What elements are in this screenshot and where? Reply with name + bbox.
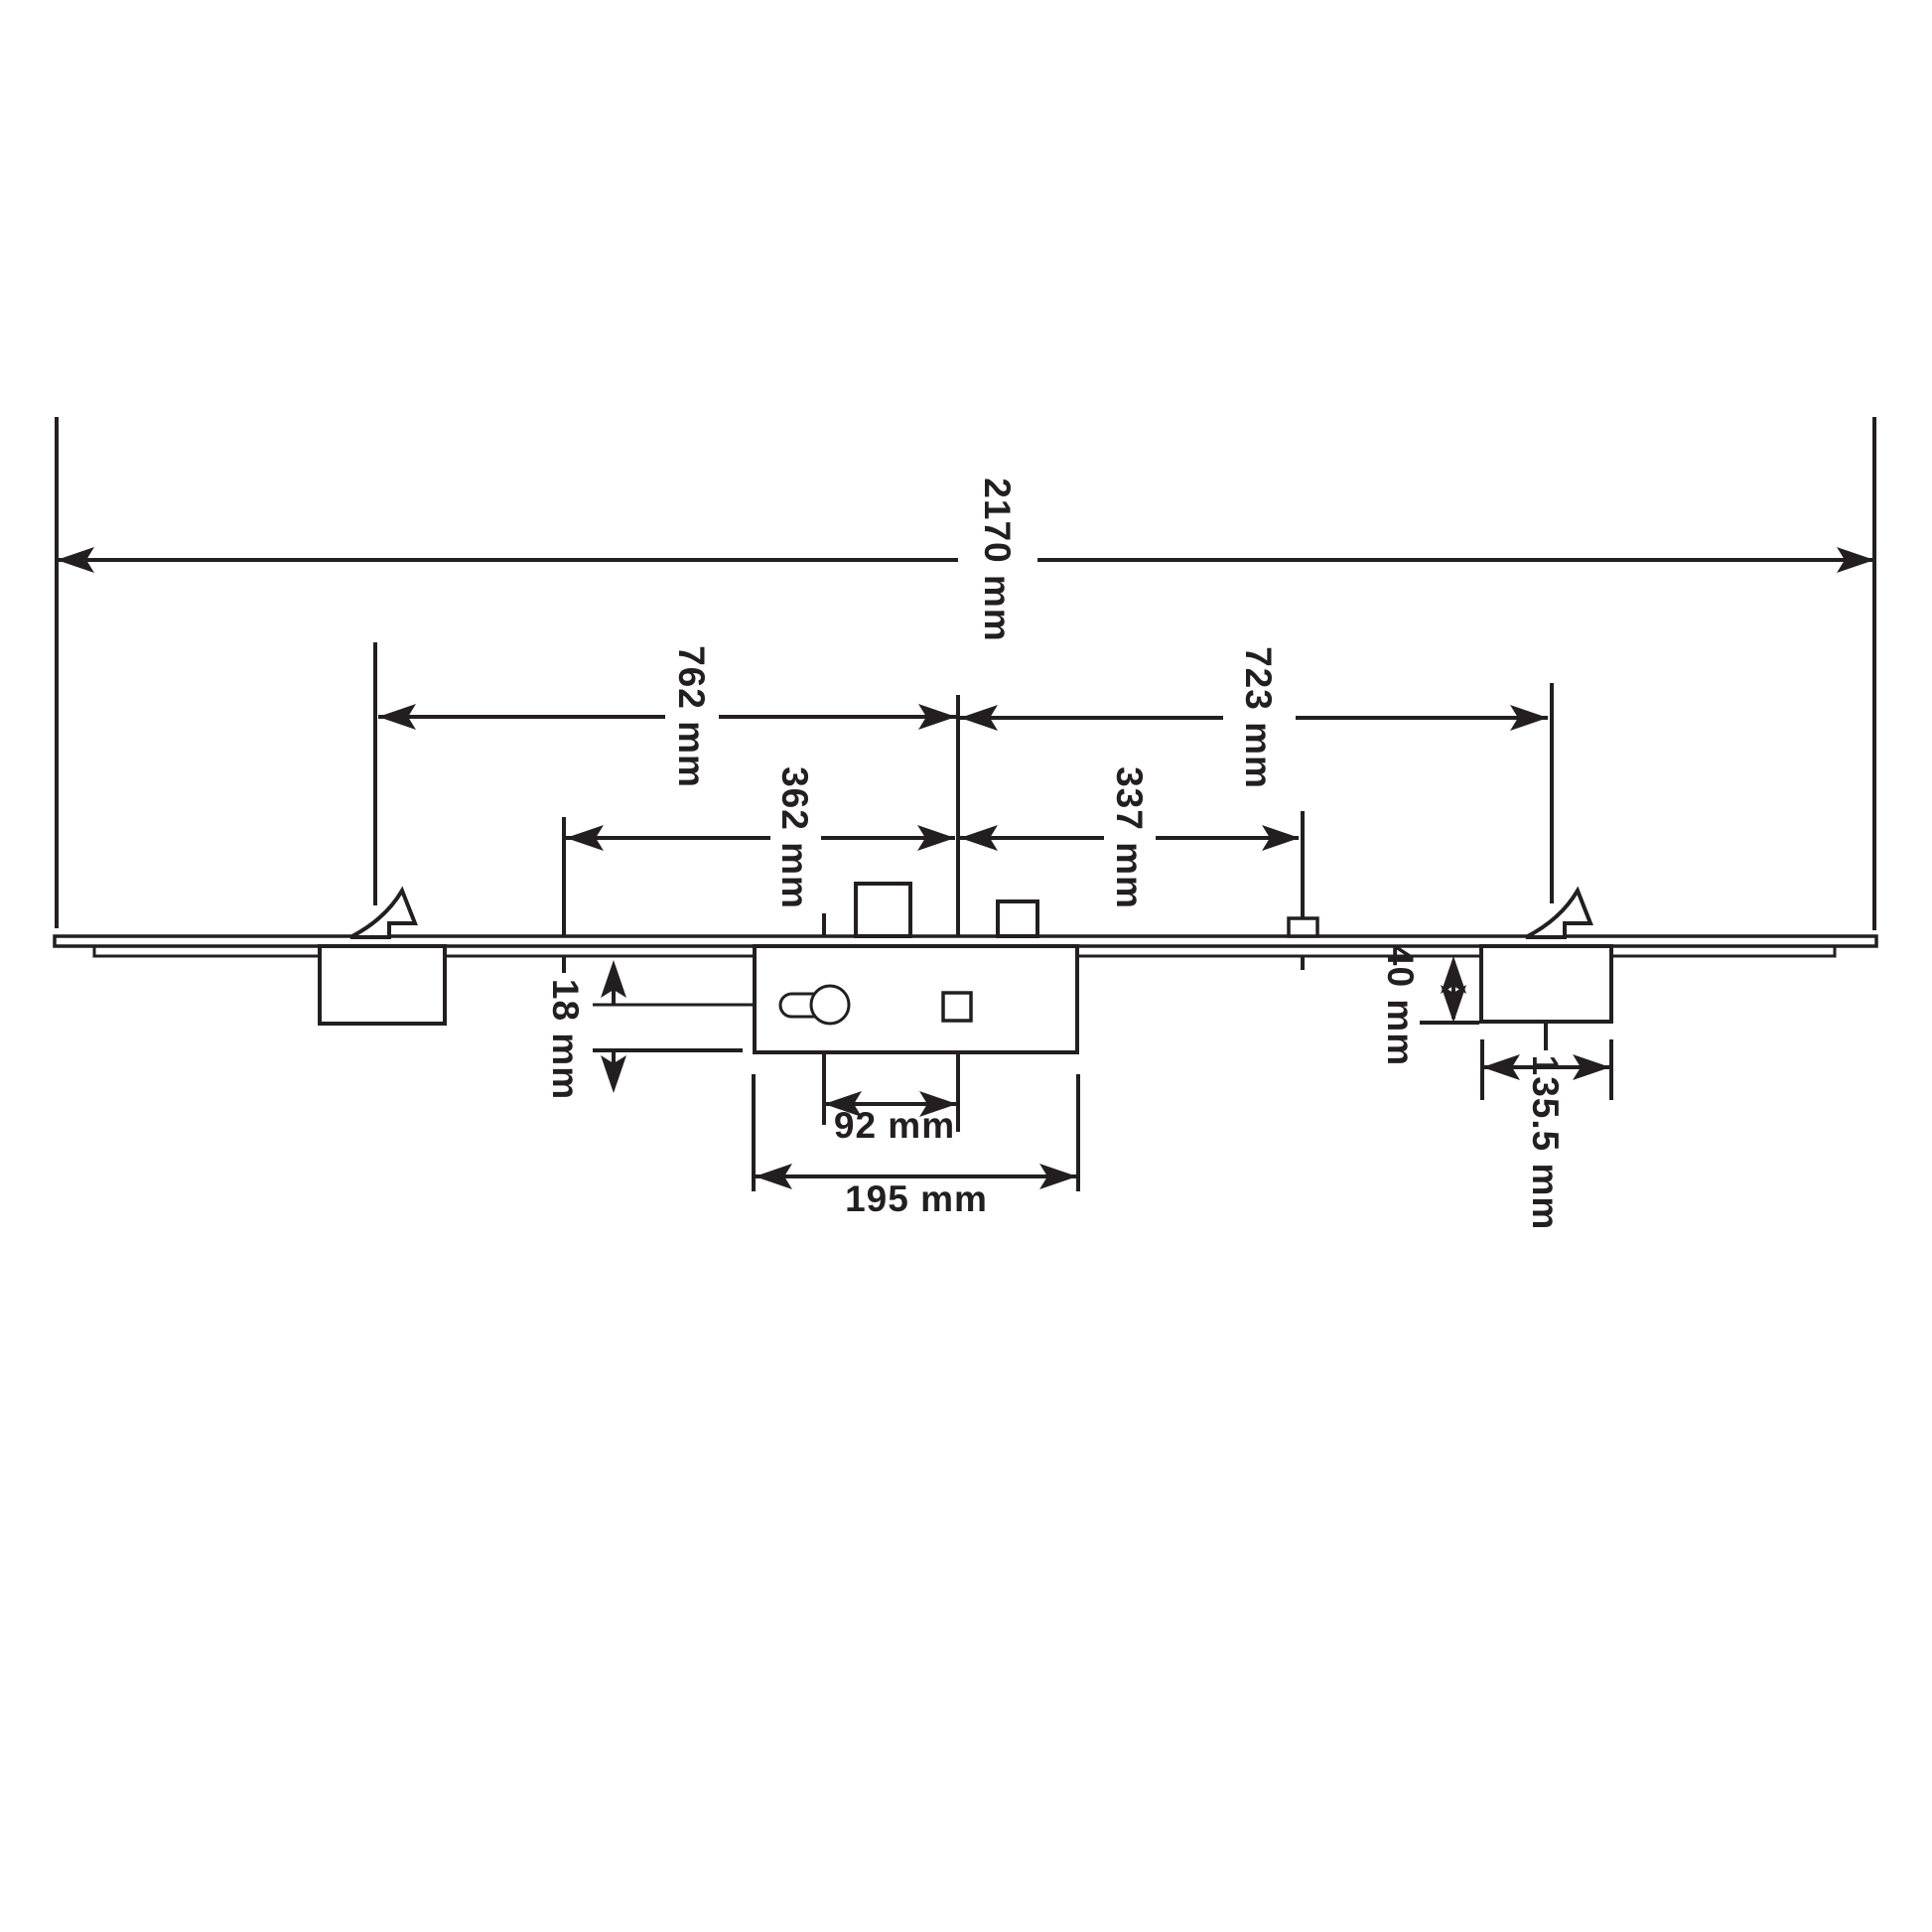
dimension-lines bbox=[57, 560, 1874, 1176]
dim-label-box-depth: 40 mm bbox=[1380, 945, 1421, 1066]
dimension-labels: 2170 mm 762 mm 723 mm 362 mm 337 mm 18 m… bbox=[545, 478, 1566, 1230]
arrowheads bbox=[57, 547, 1874, 1189]
latch-tab-left-of-center bbox=[856, 884, 910, 936]
latch-tab-right-of-center bbox=[998, 901, 1037, 936]
dim-label-left-inner: 362 mm bbox=[774, 766, 815, 909]
dim-label-right-inner: 337 mm bbox=[1109, 766, 1150, 909]
right-hook-bolt bbox=[1526, 891, 1590, 937]
spindle-square-hole bbox=[943, 993, 971, 1021]
left-strike-box bbox=[320, 946, 445, 1024]
dim-label-box-width: 135.5 mm bbox=[1525, 1055, 1566, 1231]
lock-dimension-drawing: 2170 mm 762 mm 723 mm 362 mm 337 mm 18 m… bbox=[0, 0, 1932, 1932]
left-hook-bolt bbox=[350, 891, 415, 937]
dim-label-case-length: 195 mm bbox=[845, 1178, 988, 1219]
roller-cam-tab bbox=[1289, 918, 1317, 936]
drawing-page: 2170 mm 762 mm 723 mm 362 mm 337 mm 18 m… bbox=[0, 0, 1932, 1932]
dim-label-left-span: 762 mm bbox=[671, 645, 712, 788]
dim-label-overall: 2170 mm bbox=[977, 478, 1018, 641]
euro-cylinder-keyhole bbox=[811, 986, 849, 1024]
extension-lines bbox=[57, 417, 1874, 1191]
right-strike-box bbox=[1481, 946, 1611, 1022]
lock-body bbox=[55, 884, 1876, 1052]
dim-label-backset: 92 mm bbox=[834, 1105, 955, 1146]
dim-label-right-span: 723 mm bbox=[1238, 646, 1279, 789]
dim-label-axis-offset: 18 mm bbox=[545, 979, 586, 1100]
